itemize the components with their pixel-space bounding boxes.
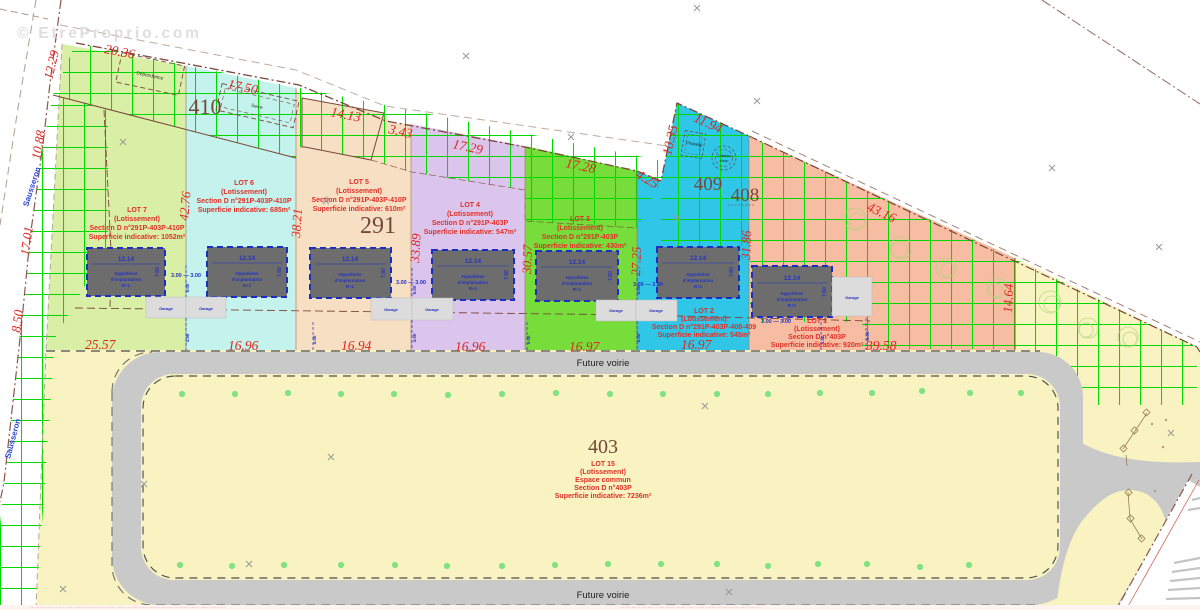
svg-text:Hypothèse: Hypothèse — [686, 272, 710, 277]
svg-text:Superficie indicative: 920m²: Superficie indicative: 920m² — [771, 342, 864, 349]
svg-text:12.14: 12.14 — [342, 256, 359, 263]
svg-text:4.96: 4.96 — [185, 333, 190, 342]
svg-text:3.00 — 3.00: 3.00 — 3.00 — [396, 280, 426, 286]
svg-text:d'implantation: d'implantation — [458, 280, 489, 285]
svg-text:Superficie indicative: 430m²: Superficie indicative: 430m² — [534, 243, 627, 250]
svg-text:16.94: 16.94 — [341, 338, 372, 353]
svg-text:(Lotissement): (Lotissement) — [336, 188, 382, 195]
svg-text:7.60: 7.60 — [155, 267, 161, 277]
svg-text:Superficie indicative: 685m²: Superficie indicative: 685m² — [198, 207, 291, 214]
svg-text:8.50: 8.50 — [8, 308, 26, 333]
svg-text:Garage: Garage — [609, 308, 624, 313]
svg-text:Superficie indicative: 1052m²: Superficie indicative: 1052m² — [89, 234, 186, 241]
svg-text:Garage: Garage — [425, 307, 440, 312]
svg-text:16.97: 16.97 — [681, 337, 713, 352]
svg-text:(Lotissement): (Lotissement) — [681, 316, 727, 323]
svg-text:6.00: 6.00 — [636, 285, 641, 294]
svg-text:7.60: 7.60 — [381, 268, 387, 278]
svg-text:25.57: 25.57 — [85, 337, 117, 352]
svg-text:LOT 2: LOT 2 — [694, 308, 714, 315]
svg-text:Future voirie: Future voirie — [577, 590, 630, 601]
svg-text:291: 291 — [360, 213, 396, 239]
svg-text:Section D n°291P-403P-410P: Section D n°291P-403P-410P — [196, 197, 291, 205]
svg-text:Garage: Garage — [199, 306, 214, 311]
svg-text:Superficie indicative: 610m²: Superficie indicative: 610m² — [313, 206, 406, 213]
svg-text:· ·· ··· · ···· ·· · ··· ····: · ·· ··· · ···· ·· · ··· ···· · ·· ··· ·… — [30, 606, 225, 610]
svg-text:14.64: 14.64 — [1000, 283, 1016, 313]
svg-text:LOT 3: LOT 3 — [570, 216, 590, 223]
svg-text:7.60: 7.60 — [277, 267, 283, 277]
svg-text:Hypothèse: Hypothèse — [338, 272, 362, 277]
svg-text:12.14: 12.14 — [784, 275, 801, 282]
svg-text:LOT 15: LOT 15 — [591, 461, 615, 468]
svg-text:5.00: 5.00 — [312, 335, 317, 344]
svg-text:R+1: R+1 — [346, 284, 355, 289]
svg-text:12.14: 12.14 — [569, 259, 586, 266]
svg-text:42.76: 42.76 — [176, 190, 194, 221]
svg-text:27.25: 27.25 — [628, 246, 644, 276]
svg-text:Hypothèse: Hypothèse — [235, 271, 259, 276]
svg-text:Hypothèse: Hypothèse — [461, 274, 485, 279]
svg-text:(Lotissement): (Lotissement) — [447, 211, 493, 218]
svg-text:d'implantation: d'implantation — [683, 278, 714, 283]
svg-text:d'eau: d'eau — [720, 159, 729, 163]
svg-text:12.14: 12.14 — [690, 255, 707, 262]
svg-text:Garage: Garage — [845, 295, 860, 300]
svg-text:d'implantation: d'implantation — [777, 297, 808, 302]
svg-text:31.86: 31.86 — [738, 230, 754, 261]
svg-text:R+1: R+1 — [469, 286, 478, 291]
svg-text:410: 410 — [189, 94, 222, 119]
svg-text:d'implantation: d'implantation — [562, 281, 593, 286]
svg-text:Section D n°291P-403P: Section D n°291P-403P — [432, 219, 509, 227]
svg-text:Section D n°291P-403P-410P: Section D n°291P-403P-410P — [89, 224, 184, 232]
svg-text:4.00: 4.00 — [412, 333, 417, 342]
svg-text:Section D n°291P-403P: Section D n°291P-403P — [542, 233, 619, 241]
svg-text:LOT 1: LOT 1 — [807, 318, 827, 325]
svg-text:6.00: 6.00 — [185, 283, 190, 292]
svg-text:© EtreProprio.com: © EtreProprio.com — [17, 25, 202, 42]
svg-text:LOT 4: LOT 4 — [460, 202, 480, 209]
svg-text:7.60: 7.60 — [729, 267, 735, 277]
svg-text:Superficie indicative: 7236m²: Superficie indicative: 7236m² — [555, 493, 652, 500]
svg-text:Garage: Garage — [649, 308, 664, 313]
svg-text:d'implantation: d'implantation — [232, 277, 263, 282]
svg-text:33.89: 33.89 — [407, 233, 424, 264]
svg-text:Section D n°291P-403P-410P: Section D n°291P-403P-410P — [311, 196, 406, 204]
svg-text:Superficie indicative: 547m²: Superficie indicative: 547m² — [424, 229, 517, 236]
svg-text:16.97: 16.97 — [569, 339, 601, 354]
svg-text:403: 403 — [588, 436, 618, 458]
svg-text:Future voirie: Future voirie — [577, 358, 630, 369]
svg-text:5.00: 5.00 — [526, 335, 531, 344]
svg-text:7.60: 7.60 — [822, 287, 828, 297]
svg-text:Section D n°403P: Section D n°403P — [788, 333, 846, 341]
svg-text:LOT 7: LOT 7 — [127, 207, 147, 214]
svg-text:Hypothèse: Hypothèse — [565, 275, 589, 280]
svg-text:38.21: 38.21 — [288, 208, 305, 239]
svg-text:R+1: R+1 — [573, 287, 582, 292]
svg-text:Hypothèse: Hypothèse — [780, 291, 804, 296]
svg-text:30.57: 30.57 — [519, 244, 535, 275]
svg-text:Hypothèse: Hypothèse — [114, 271, 138, 276]
svg-text:LOT 5: LOT 5 — [349, 179, 369, 186]
svg-text:(Lotissement): (Lotissement) — [794, 326, 840, 333]
svg-text:R+1: R+1 — [243, 283, 252, 288]
svg-text:409: 409 — [694, 174, 723, 195]
svg-text:16.96: 16.96 — [228, 338, 259, 353]
svg-text:6.00: 6.00 — [412, 285, 417, 294]
svg-text:Section D n°403P: Section D n°403P — [574, 484, 632, 492]
svg-text:3.00 — 3.00: 3.00 — 3.00 — [761, 319, 791, 325]
svg-text:Château: Château — [717, 154, 731, 158]
svg-text:(Lotissement): (Lotissement) — [221, 189, 267, 196]
svg-text:12.14: 12.14 — [118, 256, 135, 263]
svg-text:LOT 6: LOT 6 — [234, 180, 254, 187]
svg-text:R+1: R+1 — [788, 303, 797, 308]
svg-text:12.14: 12.14 — [465, 258, 482, 265]
svg-text:39.58: 39.58 — [865, 338, 897, 353]
svg-text:R+1: R+1 — [122, 283, 131, 288]
svg-text:Section D n°291P-403P-408-409: Section D n°291P-403P-408-409 — [652, 323, 756, 331]
svg-text:(Lotissement): (Lotissement) — [114, 216, 160, 223]
svg-text:· ·· ··· · ···· ·· · ··· ····: · ·· ··· · ···· ·· · ··· ···· · ·· ··· ·… — [620, 606, 761, 610]
svg-text:12.14: 12.14 — [239, 255, 256, 262]
svg-text:Espace commun: Espace commun — [575, 477, 631, 484]
svg-text:d'implantation: d'implantation — [111, 277, 142, 282]
svg-text:16.96: 16.96 — [455, 339, 486, 354]
svg-text:408: 408 — [731, 185, 760, 206]
svg-text:5.00: 5.00 — [636, 333, 641, 342]
svg-text:7.60: 7.60 — [608, 271, 614, 281]
svg-text:(Lotissement): (Lotissement) — [557, 225, 603, 232]
svg-text:Garage: Garage — [159, 306, 174, 311]
svg-text:R+1: R+1 — [694, 284, 703, 289]
svg-text:7.60: 7.60 — [504, 270, 510, 280]
svg-text:(Lotissement): (Lotissement) — [580, 469, 626, 476]
svg-text:d'implantation: d'implantation — [335, 278, 366, 283]
svg-text:Garage: Garage — [384, 307, 399, 312]
